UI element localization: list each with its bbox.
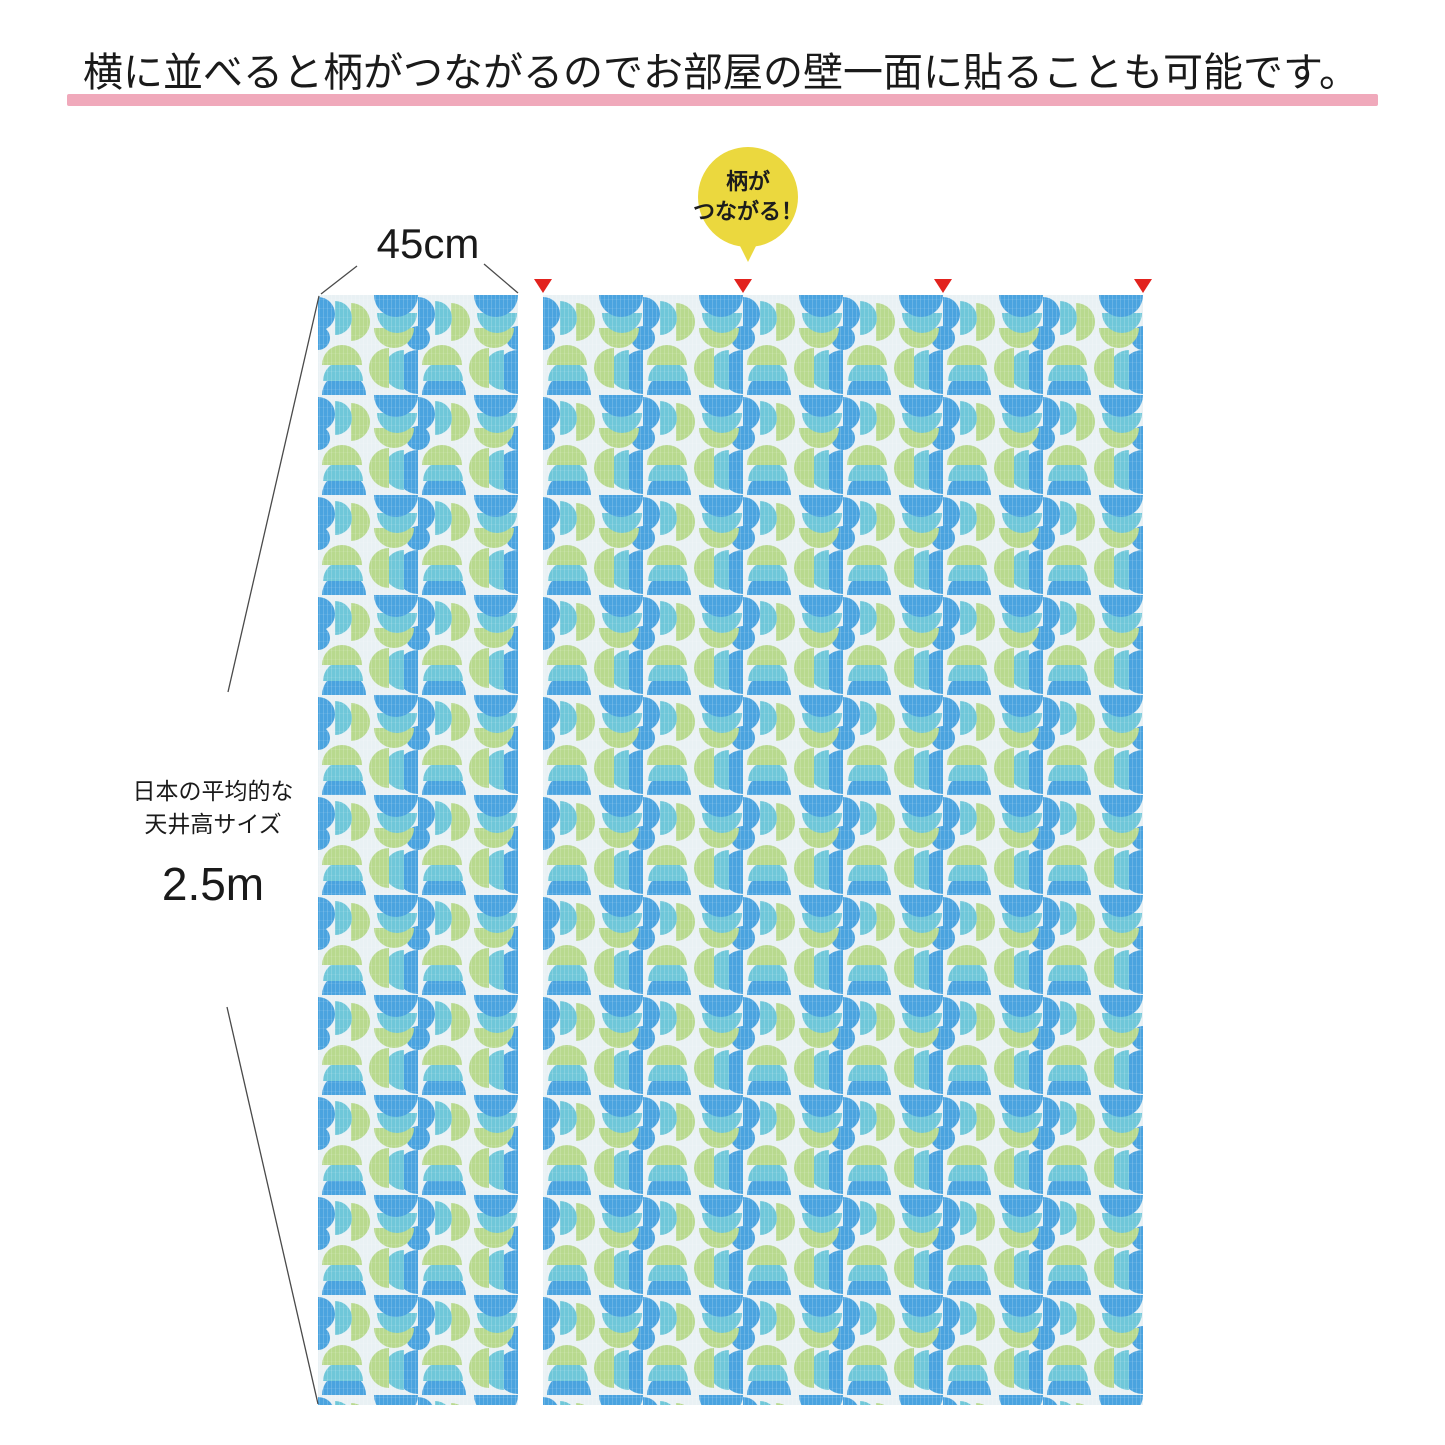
height-dimension-line-upper xyxy=(228,296,319,692)
infographic-canvas: 横に並べると柄がつながるのでお部屋の壁一面に貼ることも可能です。 柄が つながる… xyxy=(0,0,1445,1445)
height-caption-line1: 日本の平均的な xyxy=(113,775,313,808)
width-dimension-line-left xyxy=(321,266,357,294)
badge-line1: 柄が xyxy=(726,169,770,195)
width-dimension-line-right xyxy=(484,264,518,293)
seam-marker-icon xyxy=(534,279,552,293)
page-title: 横に並べると柄がつながるのでお部屋の壁一面に貼ることも可能です。 xyxy=(83,40,1403,98)
width-label: 45cm xyxy=(328,220,528,268)
seam-marker-icon xyxy=(1134,279,1152,293)
seam-marker-icon xyxy=(734,279,752,293)
wallpaper-strip-single xyxy=(318,295,518,1405)
height-dimension-line-lower xyxy=(227,1007,318,1404)
seam-marker-icon xyxy=(934,279,952,293)
height-value: 2.5m xyxy=(113,857,313,911)
height-caption-line2: 天井高サイズ xyxy=(113,808,313,841)
pattern-connects-badge: 柄が つながる！ xyxy=(698,147,798,247)
wallpaper-wall-joined xyxy=(543,295,1143,1405)
badge-line2: つながる！ xyxy=(693,199,803,225)
height-caption: 日本の平均的な 天井高サイズ 2.5m xyxy=(113,775,313,911)
